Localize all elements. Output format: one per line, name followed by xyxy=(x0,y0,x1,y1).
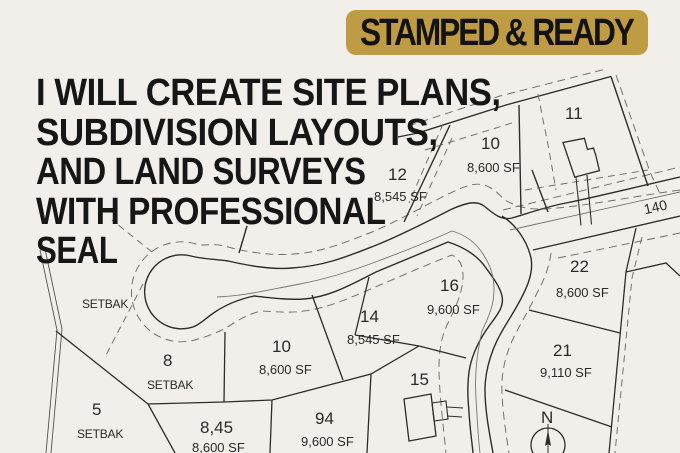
svg-text:10: 10 xyxy=(272,337,291,356)
svg-text:21: 21 xyxy=(553,341,572,360)
svg-text:SETBAK: SETBAK xyxy=(77,427,123,441)
svg-text:15: 15 xyxy=(410,370,429,389)
svg-text:5: 5 xyxy=(92,400,101,419)
svg-text:9,600 SF: 9,600 SF xyxy=(301,434,354,449)
svg-text:8,600 SF: 8,600 SF xyxy=(556,285,609,300)
svg-text:N: N xyxy=(541,408,553,427)
svg-text:8,545 SF: 8,545 SF xyxy=(347,332,400,347)
svg-text:14: 14 xyxy=(360,307,379,326)
svg-text:8: 8 xyxy=(163,351,172,370)
svg-text:16: 16 xyxy=(440,276,459,295)
svg-text:8,600 SF: 8,600 SF xyxy=(259,362,312,377)
svg-text:SETBAK: SETBAK xyxy=(147,378,193,392)
svg-text:11: 11 xyxy=(565,104,583,123)
svg-text:8,600 SF: 8,600 SF xyxy=(192,440,245,453)
svg-text:9,110 SF: 9,110 SF xyxy=(540,365,592,380)
svg-text:22: 22 xyxy=(570,257,589,276)
svg-text:SETBAK: SETBAK xyxy=(82,297,128,311)
svg-text:94: 94 xyxy=(315,409,334,428)
svg-text:8,45: 8,45 xyxy=(200,418,233,437)
svg-text:9,600 SF: 9,600 SF xyxy=(427,302,480,317)
